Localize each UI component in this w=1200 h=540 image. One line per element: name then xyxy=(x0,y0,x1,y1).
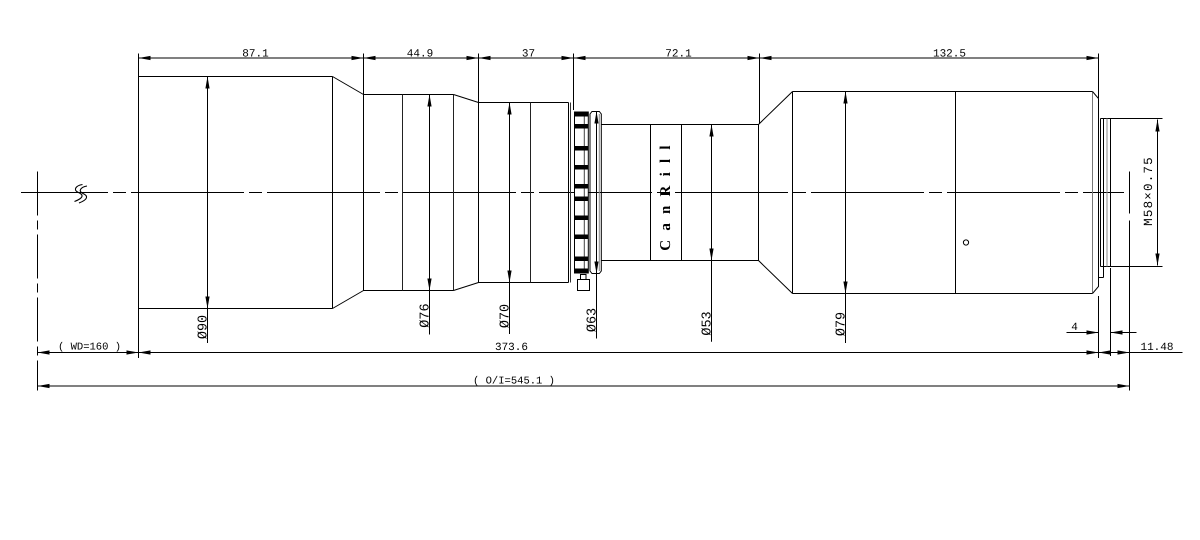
svg-text:( O/I=545.1 ): ( O/I=545.1 ) xyxy=(473,376,555,388)
svg-text:37: 37 xyxy=(522,49,535,61)
svg-text:72.1: 72.1 xyxy=(665,49,692,61)
svg-text:Ø53: Ø53 xyxy=(701,311,716,335)
svg-text:132.5: 132.5 xyxy=(933,49,966,61)
svg-text:44.9: 44.9 xyxy=(407,49,433,61)
svg-text:( WD=160 ): ( WD=160 ) xyxy=(58,342,121,354)
svg-text:11.48: 11.48 xyxy=(1140,342,1173,354)
svg-text:Ø76: Ø76 xyxy=(419,303,434,327)
svg-text:Ø63: Ø63 xyxy=(586,308,601,332)
svg-text:Ø79: Ø79 xyxy=(835,312,850,336)
svg-text:CanRill: CanRill xyxy=(658,136,674,250)
svg-text:4: 4 xyxy=(1071,322,1078,334)
svg-text:M58×0.75: M58×0.75 xyxy=(1142,156,1156,226)
svg-text:Ø90: Ø90 xyxy=(197,315,212,339)
svg-text:87.1: 87.1 xyxy=(242,49,269,61)
svg-text:Ø70: Ø70 xyxy=(499,304,514,328)
svg-text:373.6: 373.6 xyxy=(495,342,528,354)
